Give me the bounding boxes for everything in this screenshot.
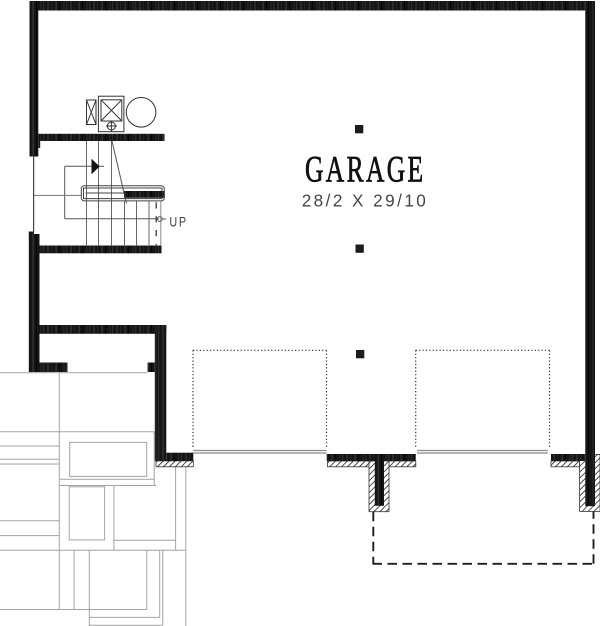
svg-text:GARAGE: GARAGE [305, 150, 426, 191]
svg-text:28/2 X 29/10: 28/2 X 29/10 [302, 191, 429, 211]
svg-text:UP: UP [169, 213, 187, 229]
